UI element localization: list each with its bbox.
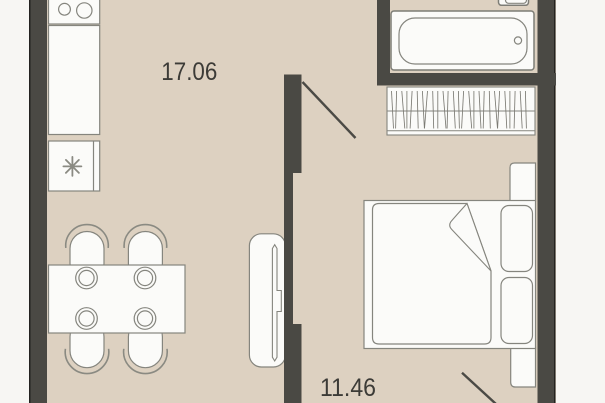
svg-text:17.06: 17.06 [161,58,217,86]
svg-text:11.46: 11.46 [320,374,376,402]
